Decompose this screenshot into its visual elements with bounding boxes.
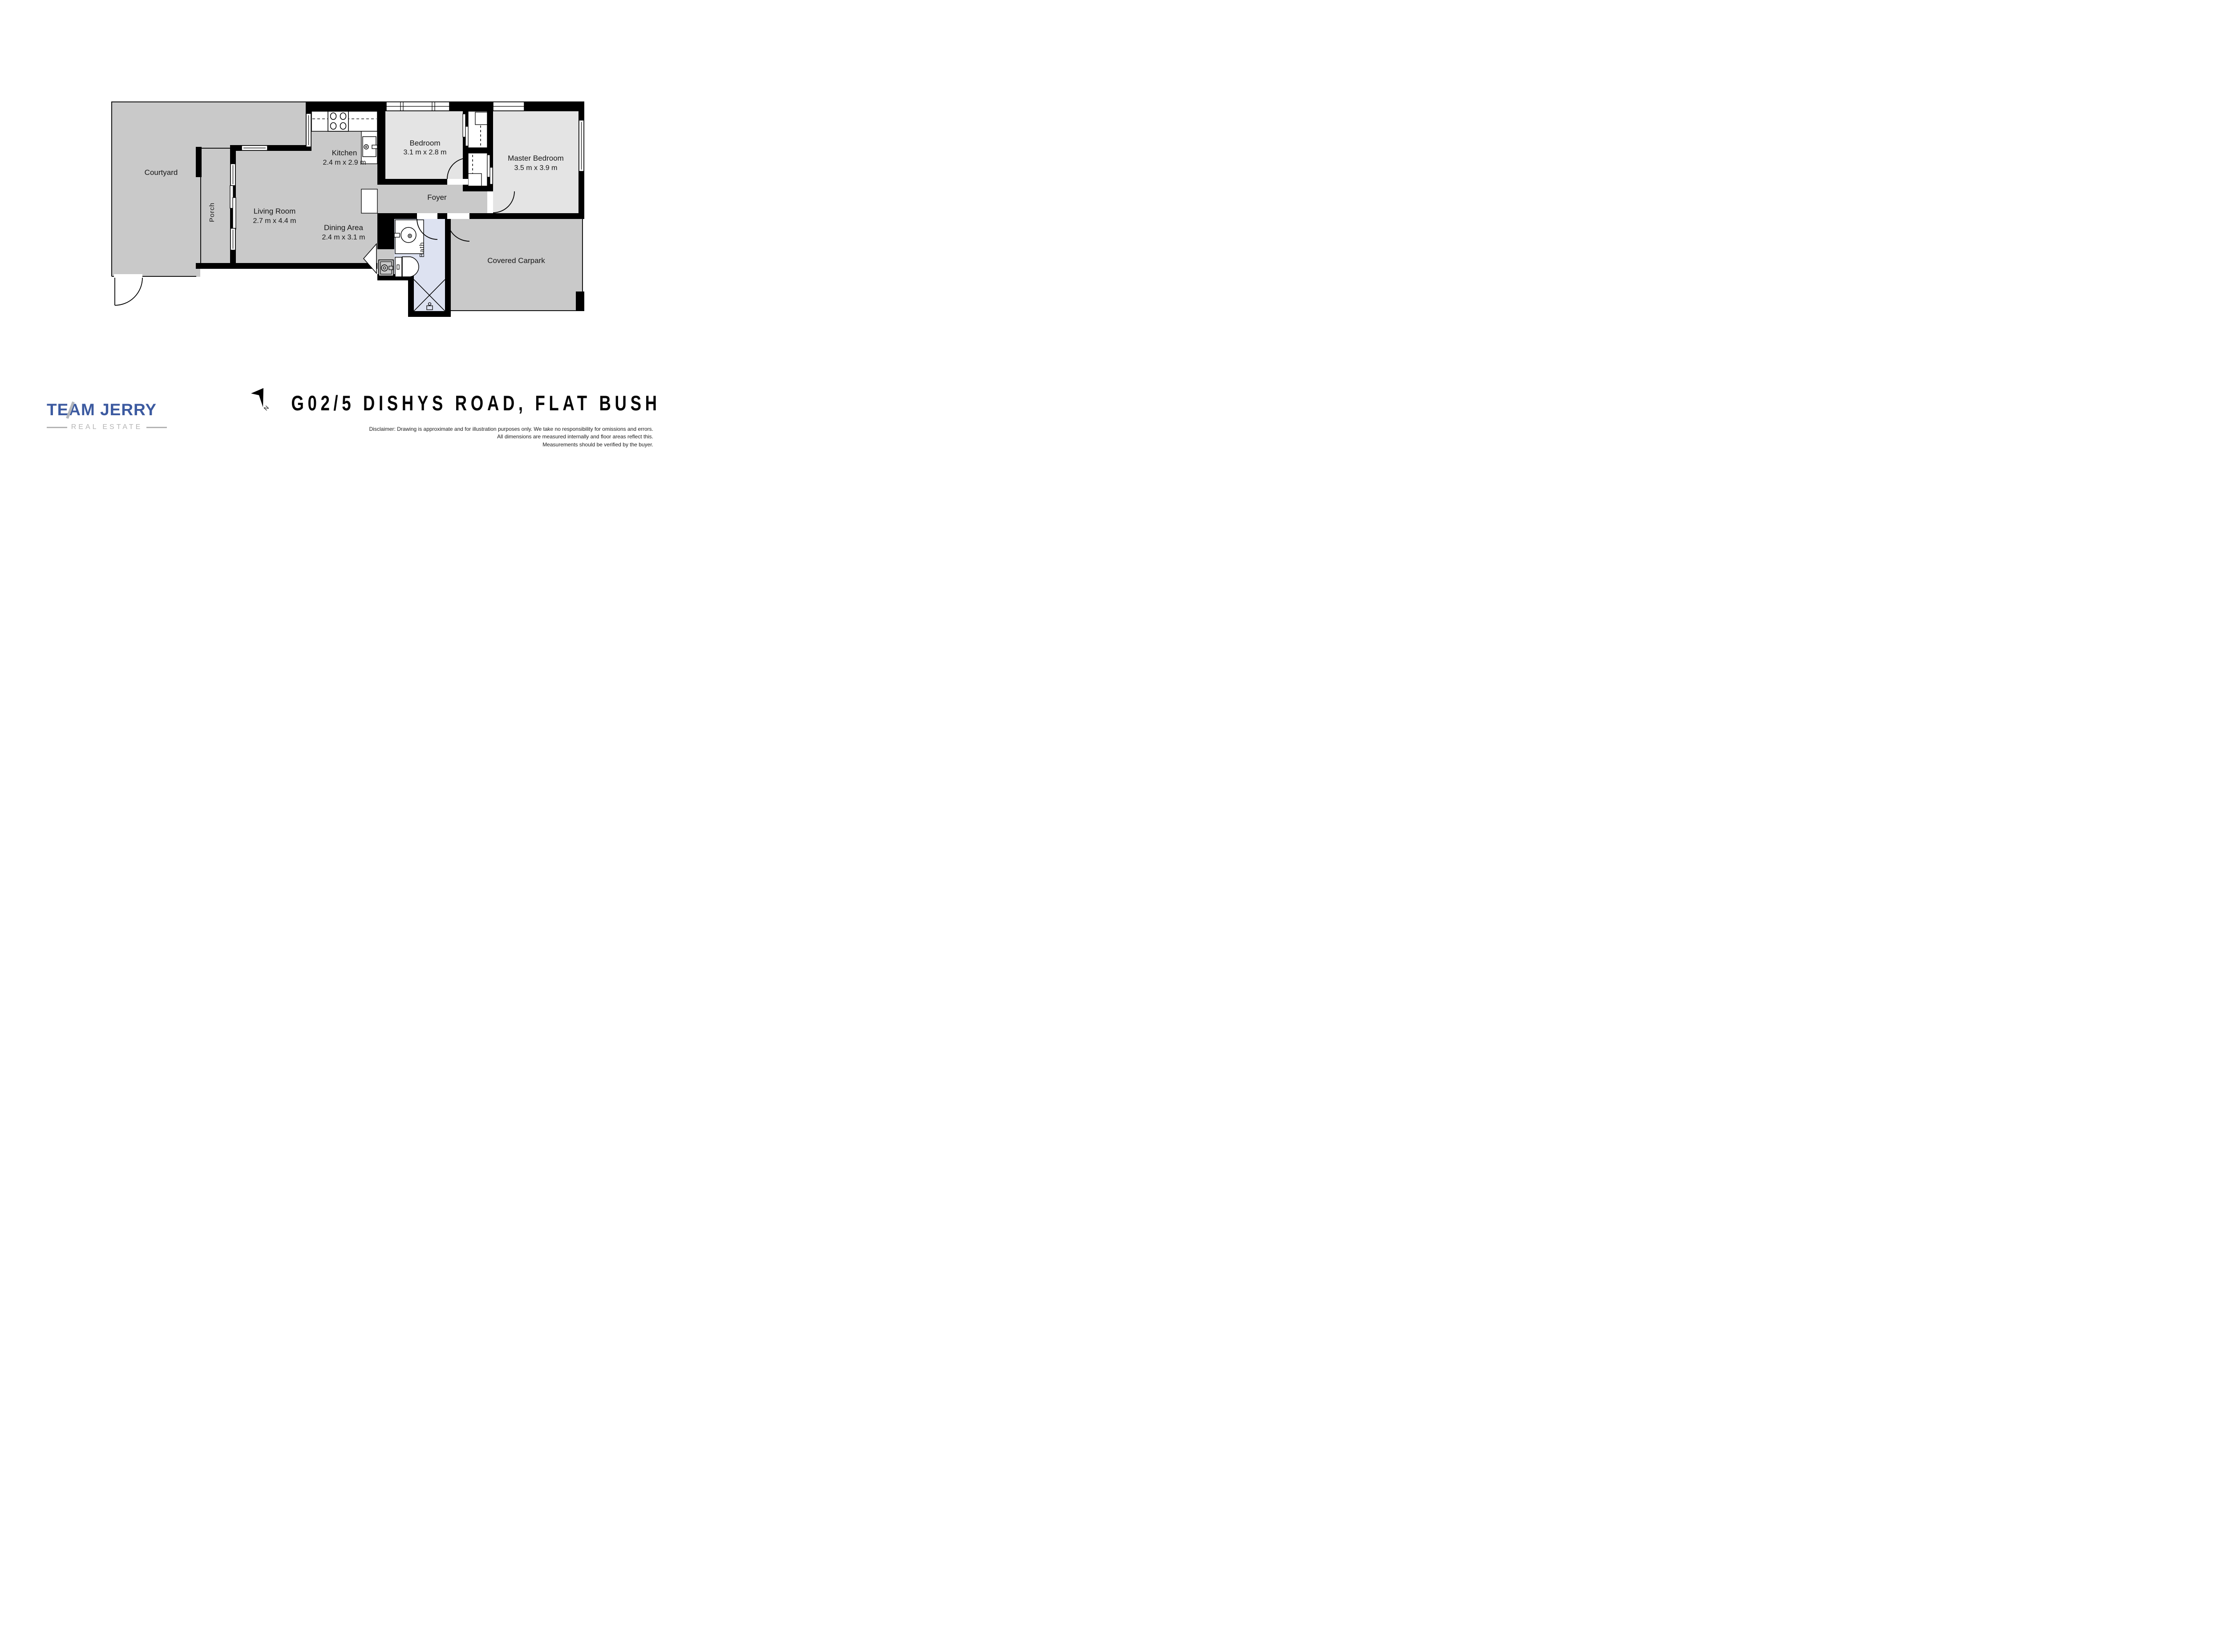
courtyard-label: Courtyard — [145, 168, 178, 177]
courtyard-gate-door — [114, 274, 142, 305]
wall-foyer-bottom — [377, 213, 584, 219]
page-title: G02/5 DISHYS ROAD, FLAT BUSH — [291, 391, 652, 415]
north-arrow-icon: N — [245, 383, 280, 418]
agency-logo-text: TEAM JERRY — [47, 401, 157, 419]
bedroom-dims: 3.1 m x 2.8 m — [404, 149, 447, 156]
master-east-window — [579, 120, 584, 171]
foyer-label: Foyer — [427, 193, 447, 202]
floor-plan: Courtyard Porch Living Room 2.7 m x 4.4 … — [0, 0, 688, 458]
disclaimer-line-3: Measurements should be verified by the b… — [369, 441, 654, 449]
toilet-icon — [395, 257, 419, 277]
wall-shower-bottom — [408, 311, 451, 317]
disclaimer-line-2: All dimensions are measured internally a… — [369, 433, 654, 441]
living-room-dims: 2.7 m x 4.4 m — [253, 217, 296, 225]
covered-carpark-label: Covered Carpark — [487, 256, 545, 265]
bedroom-top-window — [386, 102, 449, 111]
living-west-window-lower — [231, 228, 235, 250]
master-bedroom-dims: 3.5 m x 3.9 m — [514, 164, 558, 172]
bedroom-label: Bedroom — [410, 139, 441, 147]
agency-logo: TEAM JERRY REAL ESTATE — [47, 401, 167, 431]
master-bedroom-label: Master Bedroom — [508, 154, 564, 162]
disclaimer: Disclaimer: Drawing is approximate and f… — [369, 425, 654, 449]
courtyard-floor — [112, 101, 307, 148]
wall-carpark-corner — [576, 292, 584, 311]
courtyard-floor-lower — [112, 147, 200, 277]
wall-shower-west — [408, 279, 414, 311]
disclaimer-line-1: Disclaimer: Drawing is approximate and f… — [369, 425, 654, 433]
kitchen-sink-icon — [363, 137, 377, 157]
stove-icon — [328, 111, 348, 131]
agency-logo-tagline-row: REAL ESTATE — [47, 423, 167, 431]
dining-area-label: Dining Area — [324, 223, 363, 232]
wall-bath-west-chunk — [377, 213, 394, 249]
agency-logo-name: TEAM JERRY — [47, 401, 167, 419]
kitchen-west-window — [306, 113, 311, 147]
dining-area-dims: 2.4 m x 3.1 m — [322, 234, 365, 241]
logo-line-right — [146, 427, 167, 428]
kitchen-dims: 2.4 m x 2.9 m — [323, 159, 366, 166]
porch-label: Porch — [208, 202, 216, 222]
carpark-floor — [451, 219, 583, 311]
living-top-window — [242, 146, 267, 150]
kitchen-label: Kitchen — [332, 149, 357, 157]
washing-machine-icon — [379, 260, 393, 276]
kitchen-pantry — [361, 189, 377, 213]
floor-plan-page: Courtyard Porch Living Room 2.7 m x 4.4 … — [0, 0, 688, 458]
master-top-window — [493, 102, 524, 111]
wall-porch-left — [196, 147, 202, 177]
living-room-label: Living Room — [254, 207, 296, 215]
living-west-window-upper — [231, 164, 235, 186]
wall-main-bottom — [196, 263, 377, 269]
logo-line-left — [47, 427, 67, 428]
floors — [112, 101, 583, 311]
wall-bath-east — [445, 219, 451, 317]
north-label: N — [263, 404, 270, 412]
bath-label: Bath — [418, 242, 426, 258]
agency-logo-tagline: REAL ESTATE — [71, 423, 143, 431]
wall-kitchen-east — [377, 101, 385, 185]
